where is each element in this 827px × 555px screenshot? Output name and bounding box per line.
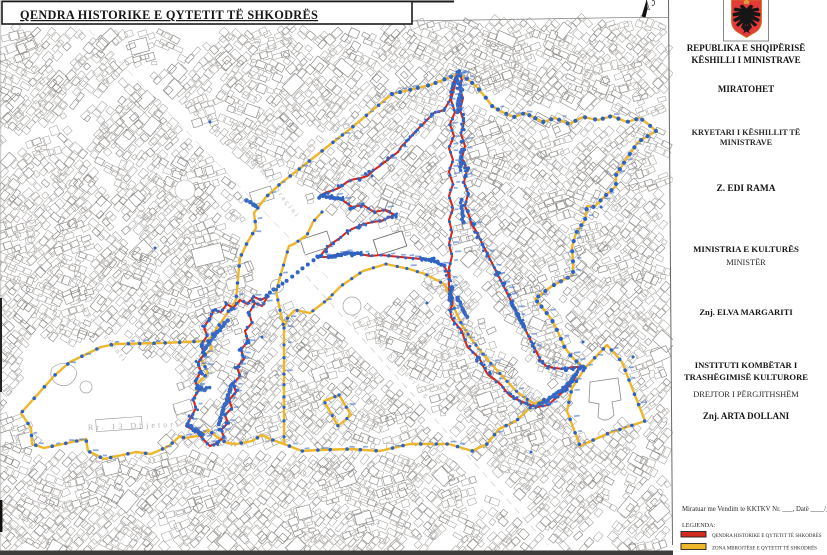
svg-text:INSTITUTI KOMBËTAR I: INSTITUTI KOMBËTAR I [695, 360, 798, 370]
svg-text:QENDRA HISTORIKE E QYTETIT TË: QENDRA HISTORIKE E QYTETIT TË SHKODRËS [20, 8, 318, 22]
svg-text:ZONA MBROJTËSE E QYTETIT TË SH: ZONA MBROJTËSE E QYTETIT TË SHKODRËS [712, 546, 817, 552]
svg-text:MINISTRIA E KULTURËS: MINISTRIA E KULTURËS [693, 244, 799, 254]
svg-text:KËSHILLI I MINISTRAVE: KËSHILLI I MINISTRAVE [691, 55, 800, 65]
svg-text:TRASHËGIMISË KULTURORE: TRASHËGIMISË KULTURORE [684, 372, 808, 382]
svg-text:MIRATOHET: MIRATOHET [718, 84, 774, 94]
svg-text:Z. EDI RAMA: Z. EDI RAMA [716, 184, 775, 194]
svg-text:Miratuar me Vendim te KKTKV N: Miratuar me Vendim te KKTKV Nr. ___, Dat… [682, 506, 827, 513]
svg-text:MINISTRAVE: MINISTRAVE [720, 138, 773, 147]
svg-text:REPUBLIKA E SHQIPËRISË: REPUBLIKA E SHQIPËRISË [687, 43, 806, 53]
svg-text:Znj. ARTA DOLLANI: Znj. ARTA DOLLANI [703, 411, 790, 421]
svg-text:KRYETARI I KËSHILLIT TË: KRYETARI I KËSHILLIT TË [692, 128, 801, 137]
svg-text:DREJTOR I PËRGJITHSHËM: DREJTOR I PËRGJITHSHËM [693, 390, 799, 399]
svg-text:QENDRA HISTORIKE E QYTETIT TË: QENDRA HISTORIKE E QYTETIT TË SHKODRËS [712, 533, 822, 539]
svg-text:MINISTËR: MINISTËR [726, 258, 766, 267]
svg-text:LEGJENDA:: LEGJENDA: [682, 522, 716, 529]
svg-text:Znj. ELVA MARGARITI: Znj. ELVA MARGARITI [699, 307, 793, 317]
